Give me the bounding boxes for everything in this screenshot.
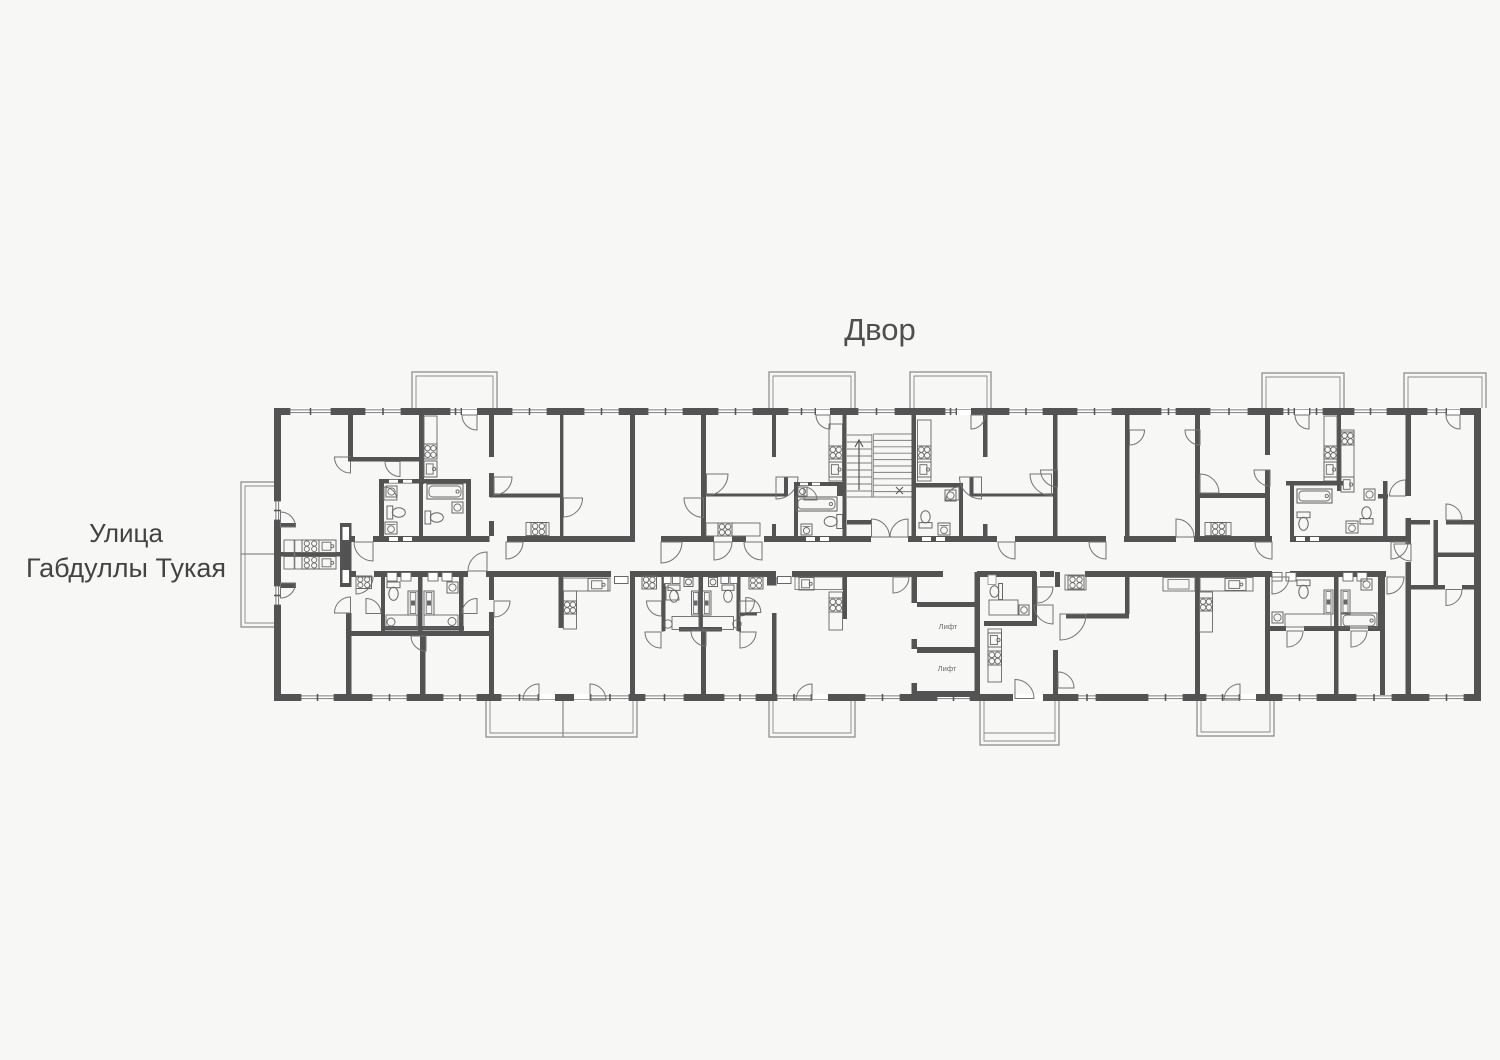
svg-text:Лифт: Лифт	[938, 664, 957, 673]
svg-text:Лифт: Лифт	[939, 622, 958, 631]
svg-text:Улица: Улица	[89, 518, 163, 548]
svg-text:Габдуллы Тукая: Габдуллы Тукая	[26, 553, 226, 583]
svg-text:Двор: Двор	[844, 312, 916, 347]
